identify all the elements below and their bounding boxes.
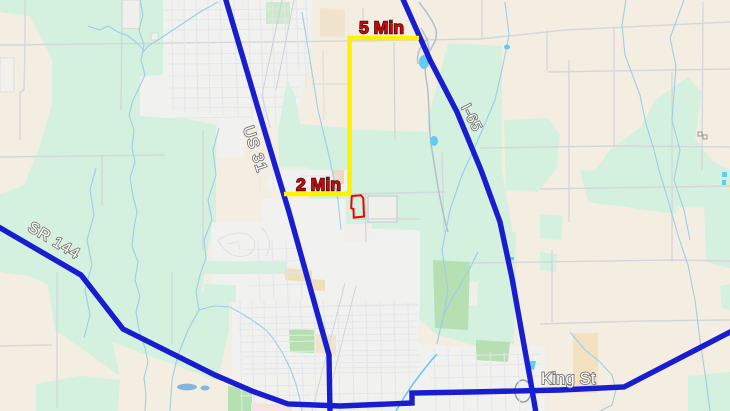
svg-text:2 Min: 2 Min [296, 175, 341, 195]
svg-text:King St: King St [541, 370, 596, 388]
svg-text:5 Min: 5 Min [359, 18, 404, 38]
